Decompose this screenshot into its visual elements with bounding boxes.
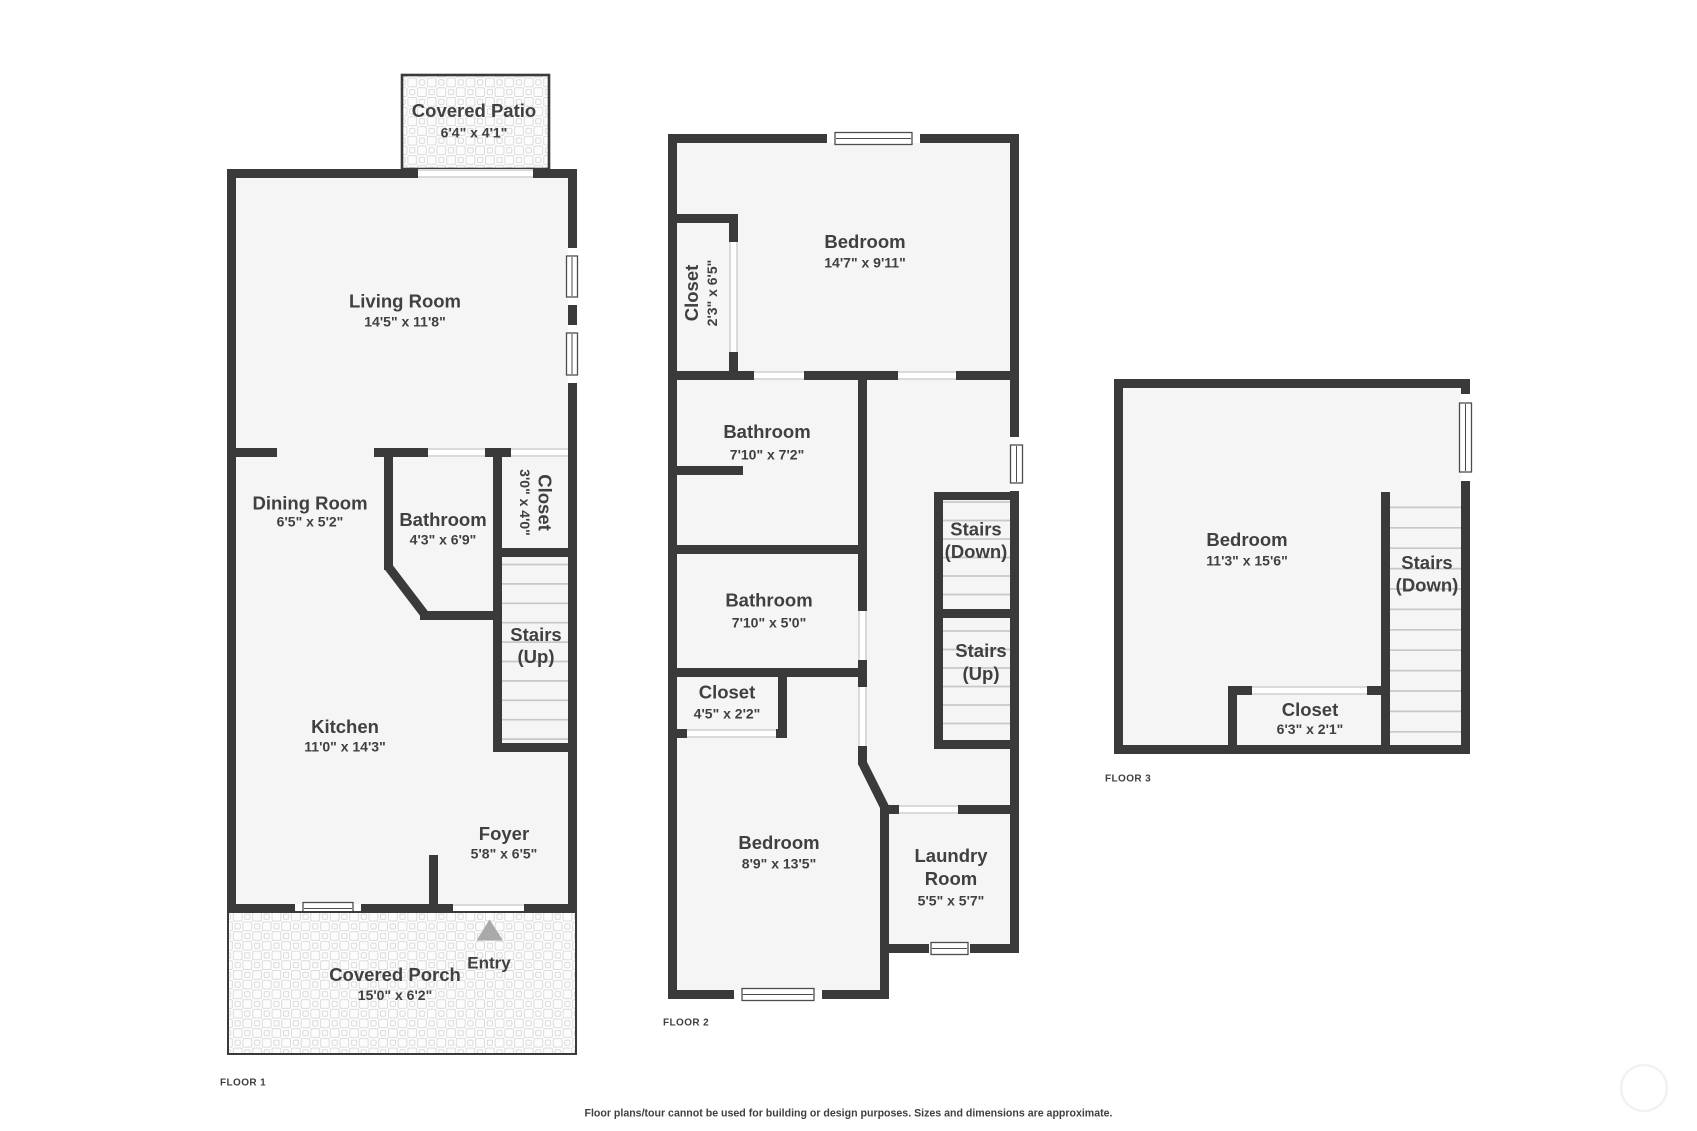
- svg-text:(Up): (Up): [518, 646, 555, 667]
- svg-text:Floor plans/tour cannot be use: Floor plans/tour cannot be used for buil…: [584, 1108, 1112, 1120]
- svg-text:11'3" x 15'6": 11'3" x 15'6": [1206, 553, 1287, 569]
- svg-text:14'7" x 9'11": 14'7" x 9'11": [824, 255, 905, 271]
- svg-text:7'10" x 5'0": 7'10" x 5'0": [732, 615, 806, 631]
- svg-text:4'3" x 6'9": 4'3" x 6'9": [410, 532, 477, 548]
- svg-text:Bathroom: Bathroom: [725, 590, 812, 611]
- svg-text:7'10" x 7'2": 7'10" x 7'2": [730, 447, 804, 463]
- svg-text:Bedroom: Bedroom: [824, 231, 905, 252]
- svg-text:FLOOR 2: FLOOR 2: [663, 1017, 709, 1028]
- svg-text:Laundry: Laundry: [915, 845, 989, 866]
- svg-text:Closet: Closet: [699, 682, 756, 703]
- svg-text:FLOOR 1: FLOOR 1: [220, 1077, 266, 1088]
- svg-text:Dining Room: Dining Room: [252, 493, 367, 514]
- svg-text:Bathroom: Bathroom: [723, 421, 810, 442]
- svg-text:5'8" x 6'5": 5'8" x 6'5": [471, 846, 538, 862]
- svg-text:Closet: Closet: [1282, 699, 1339, 720]
- svg-text:4'5" x 2'2": 4'5" x 2'2": [694, 706, 761, 722]
- svg-text:5'5" x 5'7": 5'5" x 5'7": [918, 893, 985, 909]
- svg-text:Entry: Entry: [467, 953, 511, 972]
- svg-text:Bathroom: Bathroom: [399, 509, 486, 530]
- svg-text:6'4" x 4'1": 6'4" x 4'1": [441, 125, 508, 141]
- svg-text:2'3" x 6'5": 2'3" x 6'5": [704, 260, 720, 327]
- svg-text:14'5" x 11'8": 14'5" x 11'8": [364, 314, 445, 330]
- svg-text:(Down): (Down): [945, 541, 1008, 562]
- svg-text:Closet: Closet: [681, 265, 702, 322]
- svg-text:(Up): (Up): [963, 663, 1000, 684]
- svg-text:Room: Room: [925, 868, 977, 889]
- svg-text:Kitchen: Kitchen: [311, 716, 379, 737]
- svg-text:Closet: Closet: [534, 474, 555, 531]
- svg-text:6'5" x 5'2": 6'5" x 5'2": [277, 514, 344, 530]
- svg-text:Stairs: Stairs: [950, 519, 1001, 540]
- svg-text:Stairs: Stairs: [955, 640, 1006, 661]
- svg-text:Covered Patio: Covered Patio: [412, 100, 536, 121]
- svg-text:3'0" x 4'0": 3'0" x 4'0": [517, 469, 533, 536]
- svg-text:15'0" x 6'2": 15'0" x 6'2": [358, 987, 432, 1003]
- svg-text:Covered Porch: Covered Porch: [329, 964, 461, 985]
- svg-text:Foyer: Foyer: [479, 823, 529, 844]
- svg-text:Stairs: Stairs: [1401, 552, 1452, 573]
- svg-text:Bedroom: Bedroom: [1206, 529, 1287, 550]
- svg-text:Living Room: Living Room: [349, 291, 461, 312]
- svg-text:11'0" x 14'3": 11'0" x 14'3": [304, 739, 385, 755]
- svg-text:8'9" x 13'5": 8'9" x 13'5": [742, 856, 816, 872]
- svg-text:Stairs: Stairs: [510, 624, 561, 645]
- svg-text:(Down): (Down): [1396, 575, 1459, 596]
- svg-text:Bedroom: Bedroom: [738, 832, 819, 853]
- svg-text:FLOOR 3: FLOOR 3: [1105, 773, 1151, 784]
- svg-text:6'3" x 2'1": 6'3" x 2'1": [1277, 721, 1344, 737]
